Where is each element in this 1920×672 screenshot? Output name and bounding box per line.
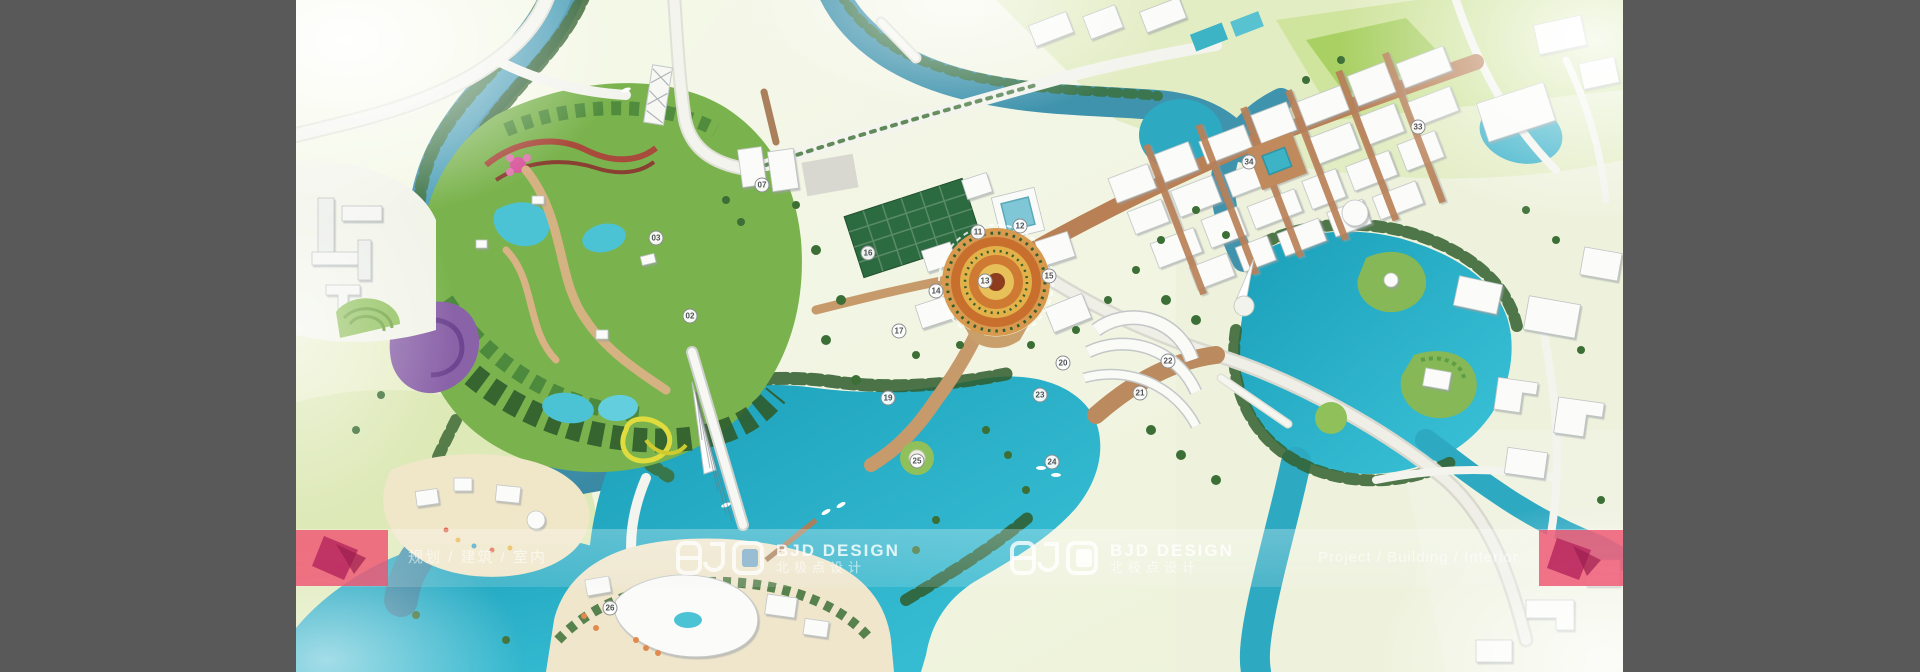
map-marker: 33 bbox=[1411, 120, 1426, 135]
map-marker: 24 bbox=[1045, 455, 1060, 470]
map-marker: 25 bbox=[910, 454, 925, 469]
map-marker: 16 bbox=[861, 246, 876, 261]
slide-canvas: 0203071112131415161719202122232425263334… bbox=[0, 0, 1920, 672]
map-marker: 11 bbox=[971, 225, 986, 240]
map-marker: 20 bbox=[1056, 356, 1071, 371]
map-marker: 13 bbox=[978, 274, 993, 289]
frame-right bbox=[1623, 0, 1920, 672]
frame-left bbox=[0, 0, 296, 672]
map-marker: 02 bbox=[683, 309, 698, 324]
map-marker: 14 bbox=[929, 284, 944, 299]
map-marker: 17 bbox=[892, 324, 907, 339]
map-marker: 23 bbox=[1033, 388, 1048, 403]
map-marker: 07 bbox=[755, 178, 770, 193]
map-marker: 26 bbox=[603, 601, 618, 616]
map-marker: 19 bbox=[881, 391, 896, 406]
map-marker: 21 bbox=[1133, 386, 1148, 401]
map-marker: 22 bbox=[1161, 354, 1176, 369]
masterplan-art bbox=[296, 0, 1623, 672]
map-marker: 34 bbox=[1242, 155, 1257, 170]
map-marker: 12 bbox=[1013, 219, 1028, 234]
map-marker: 15 bbox=[1042, 269, 1057, 284]
map-marker: 03 bbox=[649, 231, 664, 246]
masterplan-rendering: 0203071112131415161719202122232425263334… bbox=[296, 0, 1623, 672]
